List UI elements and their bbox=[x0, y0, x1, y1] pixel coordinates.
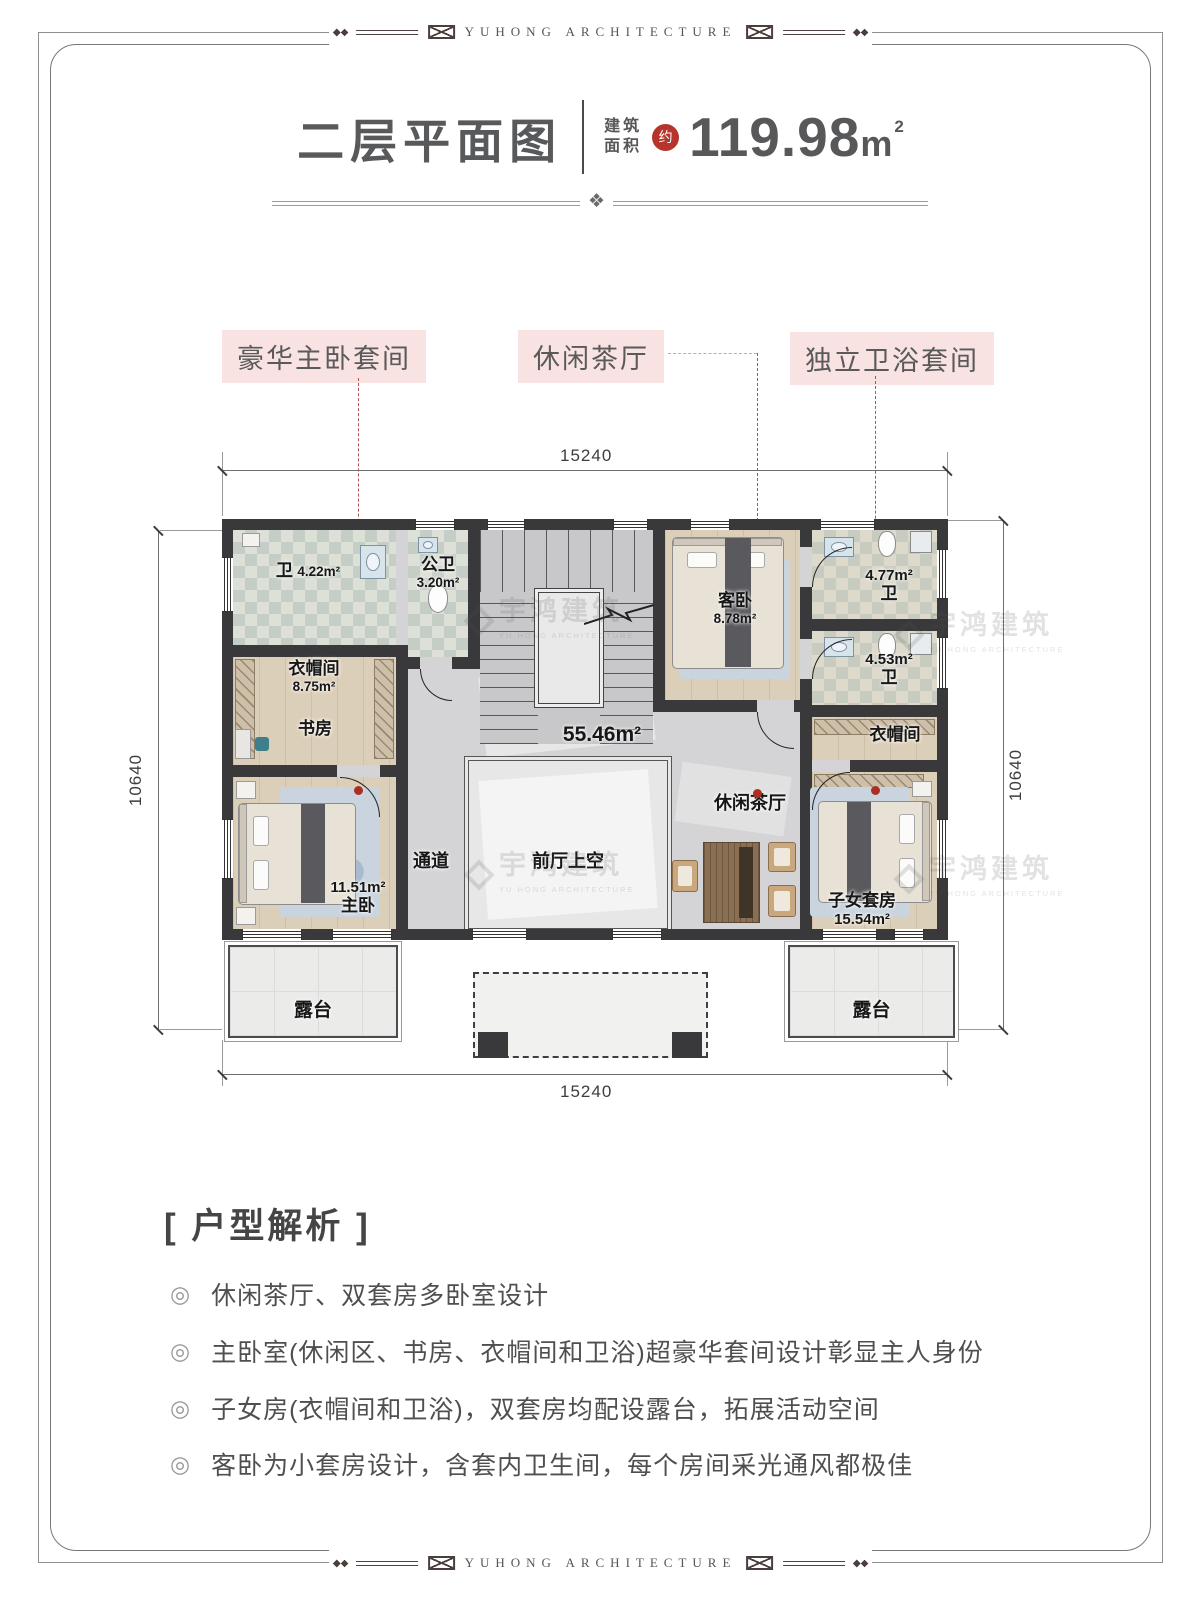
wall-segment bbox=[452, 657, 468, 669]
area-unit: m bbox=[860, 123, 893, 165]
callout-bath-suite: 独立卫浴套间 bbox=[790, 332, 994, 385]
headboard bbox=[922, 802, 930, 901]
banner-line bbox=[356, 30, 418, 35]
dim-value-bottom: 15240 bbox=[560, 1082, 612, 1102]
area-label-bottom: 面积 bbox=[604, 137, 642, 157]
door-arc-guest bbox=[757, 712, 794, 749]
banner-text: YUHONG ARCHITECTURE bbox=[465, 24, 737, 40]
tea-chair bbox=[672, 860, 698, 892]
foyer-void bbox=[468, 760, 668, 929]
void-floor bbox=[478, 769, 657, 920]
area-value: 119.98m2 bbox=[689, 105, 904, 169]
callout-tea-lounge: 休闲茶厅 bbox=[518, 330, 664, 383]
label-hall-area: 55.46m² bbox=[542, 723, 662, 747]
header-divider bbox=[582, 100, 584, 174]
approx-badge: 约 bbox=[652, 124, 679, 151]
label-children-suite: 子女套房 15.54m² bbox=[802, 891, 922, 928]
bed-runner bbox=[847, 802, 871, 901]
pillow bbox=[899, 814, 915, 844]
headboard bbox=[239, 804, 247, 903]
wall-segment bbox=[850, 760, 937, 772]
label-terrace-left: 露台 bbox=[294, 1000, 332, 1022]
extension-line bbox=[947, 1040, 948, 1086]
wall-segment bbox=[800, 530, 812, 547]
analysis-item: ◎ 主卧室(休闲区、书房、衣帽间和卫浴)超豪华套间设计彰显主人身份 bbox=[170, 1333, 984, 1369]
label-tea-lounge: 休闲茶厅 bbox=[690, 793, 810, 814]
extension-line bbox=[160, 530, 222, 531]
banner-line bbox=[783, 1561, 845, 1566]
window bbox=[222, 557, 233, 612]
banner-line bbox=[356, 1561, 418, 1566]
page-title: 二层平面图 bbox=[297, 103, 562, 172]
window bbox=[822, 929, 877, 940]
porch-column bbox=[672, 1032, 702, 1058]
stair-treads bbox=[480, 592, 538, 744]
window bbox=[613, 519, 648, 530]
envelope-icon bbox=[746, 1556, 773, 1570]
dim-value-left: 10640 bbox=[126, 754, 146, 806]
analysis-title: [ 户型解析 ] bbox=[164, 1198, 371, 1249]
sink bbox=[418, 537, 438, 553]
nightstand bbox=[912, 781, 932, 797]
wall-segment bbox=[380, 765, 396, 777]
callout-master-suite: 豪华主卧套间 bbox=[222, 330, 426, 383]
wall-segment bbox=[653, 700, 757, 712]
clover-icon bbox=[853, 1555, 869, 1571]
analysis-item: ◎ 子女房(衣帽间和卫浴)，双套房均配设露台，拓展活动空间 bbox=[170, 1390, 880, 1426]
desk-chair bbox=[255, 737, 269, 751]
window bbox=[415, 519, 455, 530]
analysis-item: ◎ 休闲茶厅、双套房多卧室设计 bbox=[170, 1276, 549, 1312]
wall-segment bbox=[408, 657, 420, 669]
extension-line bbox=[948, 520, 1004, 521]
analysis-text: 子女房(衣帽间和卫浴)，双套房均配设露台，拓展活动空间 bbox=[211, 1390, 880, 1426]
banner-text: YUHONG ARCHITECTURE bbox=[465, 1555, 737, 1571]
leader-dot bbox=[753, 789, 762, 798]
label-study: 书房 bbox=[280, 719, 350, 739]
label-master-bedroom: 11.51m² 主卧 bbox=[310, 879, 406, 916]
wall-segment bbox=[800, 760, 812, 772]
analysis-text: 客卧为小套房设计，含套内卫生间，每个房间采光通风都极佳 bbox=[211, 1446, 913, 1482]
window bbox=[487, 519, 525, 530]
tea-table bbox=[703, 842, 760, 923]
label-public-bath: 公卫 3.20m² bbox=[406, 555, 470, 590]
bullet-icon: ◎ bbox=[170, 1395, 191, 1422]
desk bbox=[235, 729, 251, 759]
label-closet-left: 衣帽间 8.75m² bbox=[254, 659, 374, 694]
dim-line-bottom bbox=[222, 1074, 948, 1075]
stair-treads bbox=[480, 530, 653, 592]
envelope-icon bbox=[428, 25, 455, 39]
clover-icon bbox=[332, 1555, 348, 1571]
bath-cabinet bbox=[242, 533, 260, 547]
leader-dot bbox=[354, 786, 363, 795]
label-closet-right: 衣帽间 bbox=[850, 725, 940, 745]
analysis-item: ◎ 客卧为小套房设计，含套内卫生间，每个房间采光通风都极佳 bbox=[170, 1446, 913, 1482]
window bbox=[222, 819, 233, 879]
terrace-left: 露台 bbox=[228, 945, 398, 1038]
label-foyer-void: 前厅上空 bbox=[508, 851, 628, 872]
wardrobe bbox=[374, 659, 394, 759]
analysis-text: 休闲茶厅、双套房多卧室设计 bbox=[211, 1276, 549, 1312]
wall-segment bbox=[233, 645, 408, 657]
banner-line bbox=[783, 30, 845, 35]
porch-column bbox=[478, 1032, 508, 1058]
extension-line bbox=[160, 1029, 222, 1030]
area-superscript: 2 bbox=[894, 117, 904, 137]
wall-segment bbox=[653, 530, 665, 712]
extension-line bbox=[948, 1029, 1004, 1030]
window bbox=[472, 929, 527, 940]
extension-line bbox=[222, 452, 223, 516]
pillow bbox=[253, 860, 269, 890]
divider-ornament-icon: ❖ bbox=[580, 190, 613, 213]
nightstand bbox=[236, 907, 256, 925]
label-terrace-right: 露台 bbox=[852, 1000, 890, 1022]
terrace-right: 露台 bbox=[788, 945, 955, 1038]
extension-line bbox=[222, 1040, 223, 1086]
window bbox=[937, 549, 948, 599]
header: 二层平面图 建筑 面积 约 119.98m2 bbox=[0, 100, 1201, 174]
door-arc-public-bath bbox=[420, 669, 452, 701]
window bbox=[332, 929, 392, 940]
wall-segment bbox=[800, 587, 812, 639]
window bbox=[242, 929, 302, 940]
label-bath-right-upper: 4.77m² 卫 bbox=[844, 567, 934, 604]
leader-line bbox=[668, 353, 757, 354]
bullet-icon: ◎ bbox=[170, 1451, 191, 1478]
wall-segment bbox=[812, 619, 937, 631]
window bbox=[690, 519, 730, 530]
area-label: 建筑 面积 bbox=[604, 117, 642, 157]
window bbox=[937, 819, 948, 879]
pillow bbox=[253, 816, 269, 846]
envelope-icon bbox=[746, 25, 773, 39]
area-label-top: 建筑 bbox=[604, 117, 642, 137]
dim-value-top: 15240 bbox=[560, 446, 612, 466]
bullet-icon: ◎ bbox=[170, 1338, 191, 1365]
toilet bbox=[878, 531, 896, 557]
pillow bbox=[899, 858, 915, 888]
dim-line-left bbox=[158, 530, 159, 1030]
top-banner: YUHONG ARCHITECTURE bbox=[329, 19, 873, 45]
dim-line-top bbox=[222, 470, 948, 471]
nightstand bbox=[236, 781, 256, 799]
wall-segment bbox=[468, 530, 480, 669]
label-bath-right-lower: 4.53m² 卫 bbox=[844, 651, 934, 688]
tea-chair bbox=[768, 885, 796, 917]
area-number: 119.98 bbox=[689, 105, 860, 169]
envelope-icon bbox=[428, 1556, 455, 1570]
floor-plan: 卫 4.22m² 公卫 3.20m² 衣帽间 8.75m² 书房 客卧 8.78… bbox=[222, 519, 948, 940]
pillow bbox=[687, 552, 717, 568]
stair-break-symbol bbox=[584, 603, 654, 629]
window bbox=[820, 519, 875, 530]
label-bath-top-left: 卫 4.22m² bbox=[246, 561, 370, 581]
wall-segment bbox=[812, 705, 937, 717]
analysis-text: 主卧室(休闲区、书房、衣帽间和卫浴)超豪华套间设计彰显主人身份 bbox=[211, 1333, 984, 1369]
label-corridor: 通道 bbox=[398, 851, 464, 872]
bed-children bbox=[818, 801, 932, 903]
window bbox=[894, 929, 924, 940]
label-guest-bedroom: 客卧 8.78m² bbox=[685, 591, 785, 626]
page: YUHONG ARCHITECTURE 二层平面图 建筑 面积 约 119.98… bbox=[0, 0, 1201, 1614]
tea-chair bbox=[768, 842, 796, 872]
clover-icon bbox=[853, 24, 869, 40]
window bbox=[612, 929, 662, 940]
bottom-banner: YUHONG ARCHITECTURE bbox=[329, 1550, 873, 1576]
dim-value-right: 10640 bbox=[1006, 749, 1026, 801]
window bbox=[937, 637, 948, 689]
wall-segment bbox=[800, 679, 812, 772]
shower bbox=[910, 531, 932, 553]
clover-icon bbox=[332, 24, 348, 40]
leader-dot bbox=[871, 786, 880, 795]
extension-line bbox=[947, 452, 948, 516]
dim-line-right bbox=[1003, 520, 1004, 1030]
bullet-icon: ◎ bbox=[170, 1281, 191, 1308]
area-group: 建筑 面积 约 119.98m2 bbox=[604, 105, 904, 169]
wall-segment bbox=[233, 765, 337, 777]
